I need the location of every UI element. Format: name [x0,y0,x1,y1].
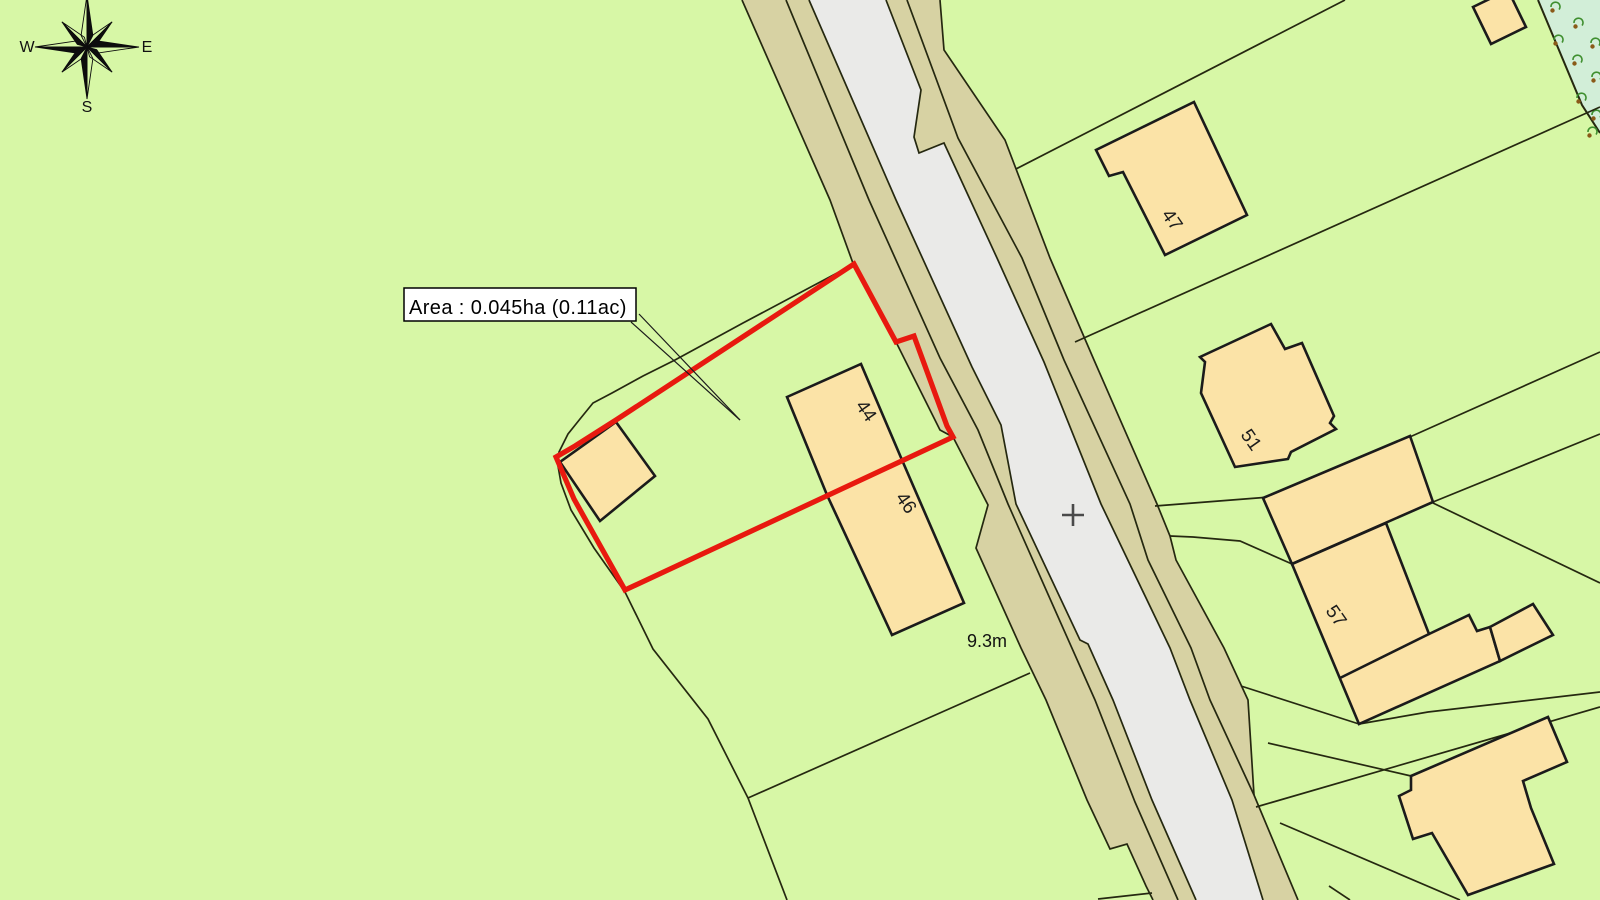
svg-text:S: S [82,99,93,116]
svg-text:W: W [19,39,35,56]
svg-text:9.3m: 9.3m [967,631,1007,651]
svg-text:E: E [142,39,153,56]
svg-text:Area : 0.045ha (0.11ac): Area : 0.045ha (0.11ac) [409,297,627,319]
